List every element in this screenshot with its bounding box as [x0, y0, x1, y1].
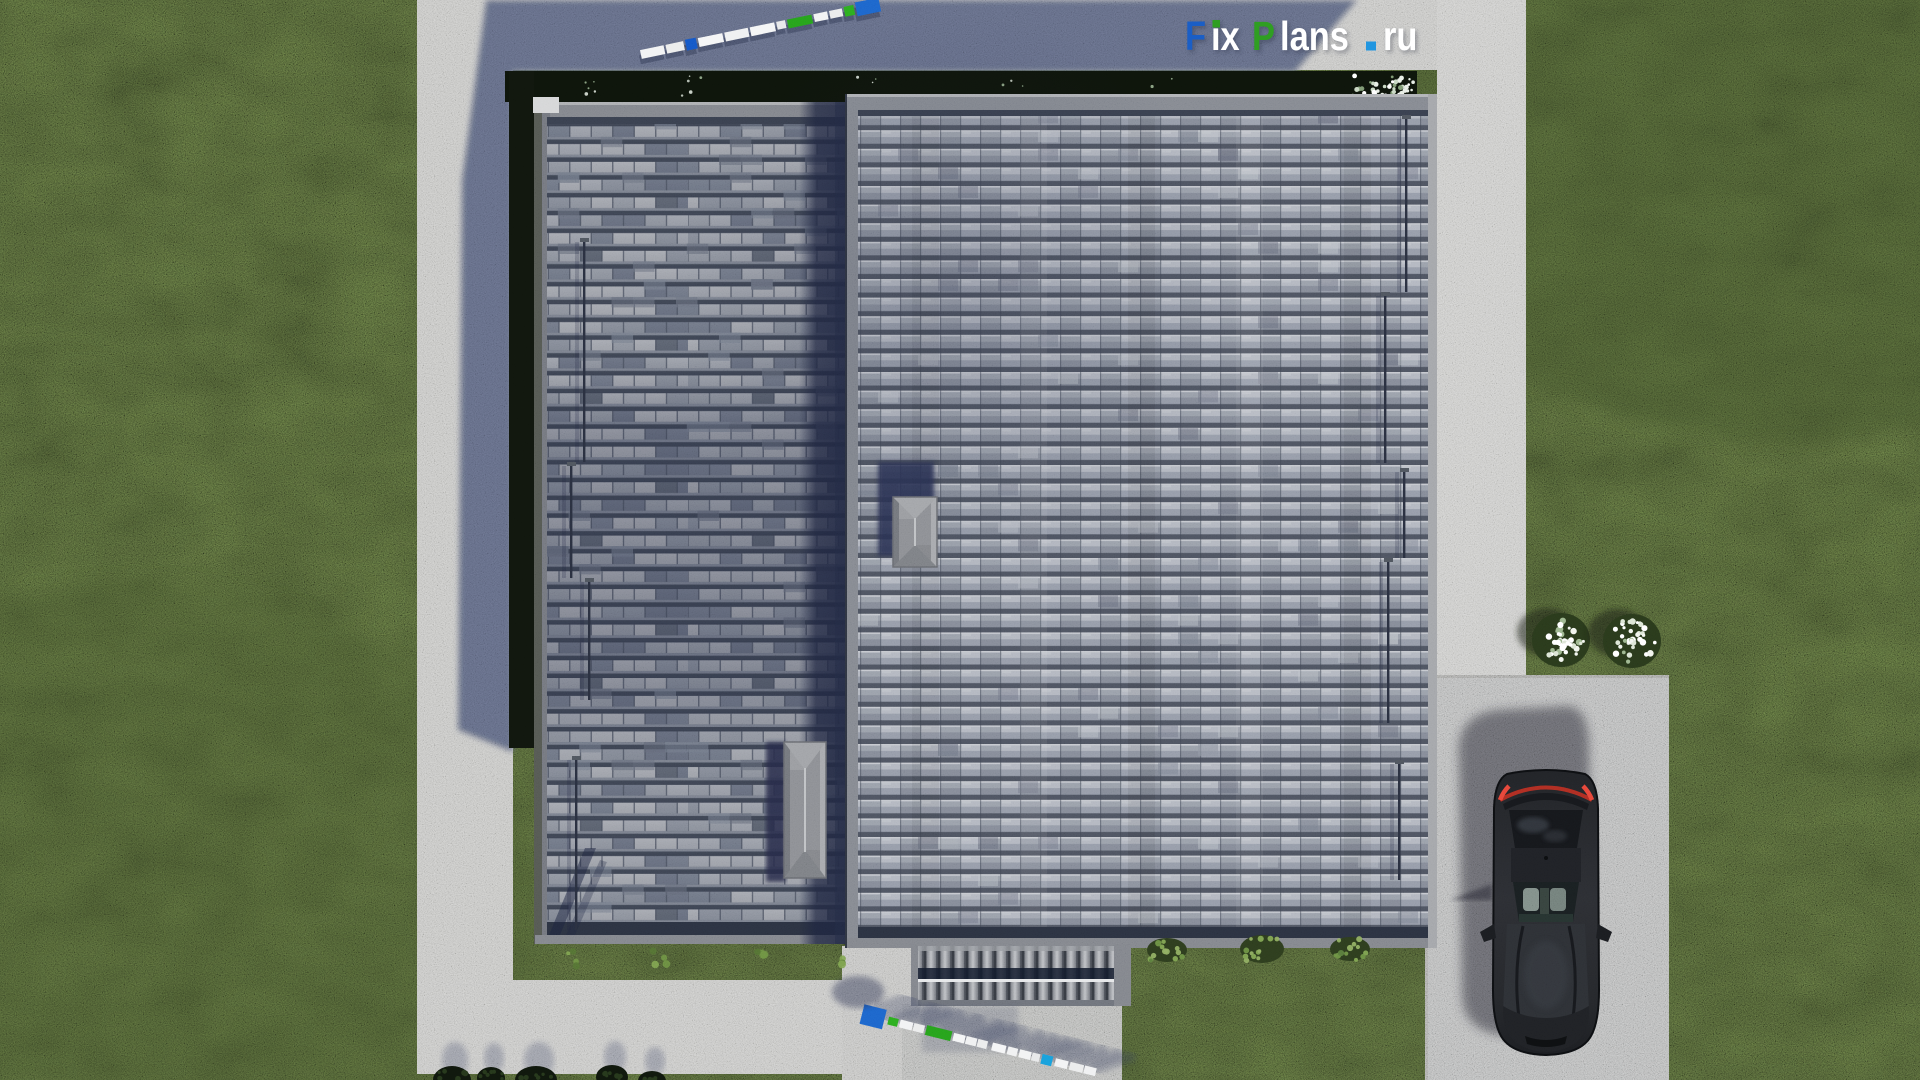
svg-text:P: P [1252, 13, 1275, 58]
svg-text:lans: lans [1280, 13, 1349, 58]
svg-text:F: F [1185, 13, 1206, 58]
svg-text:ru: ru [1383, 13, 1417, 58]
